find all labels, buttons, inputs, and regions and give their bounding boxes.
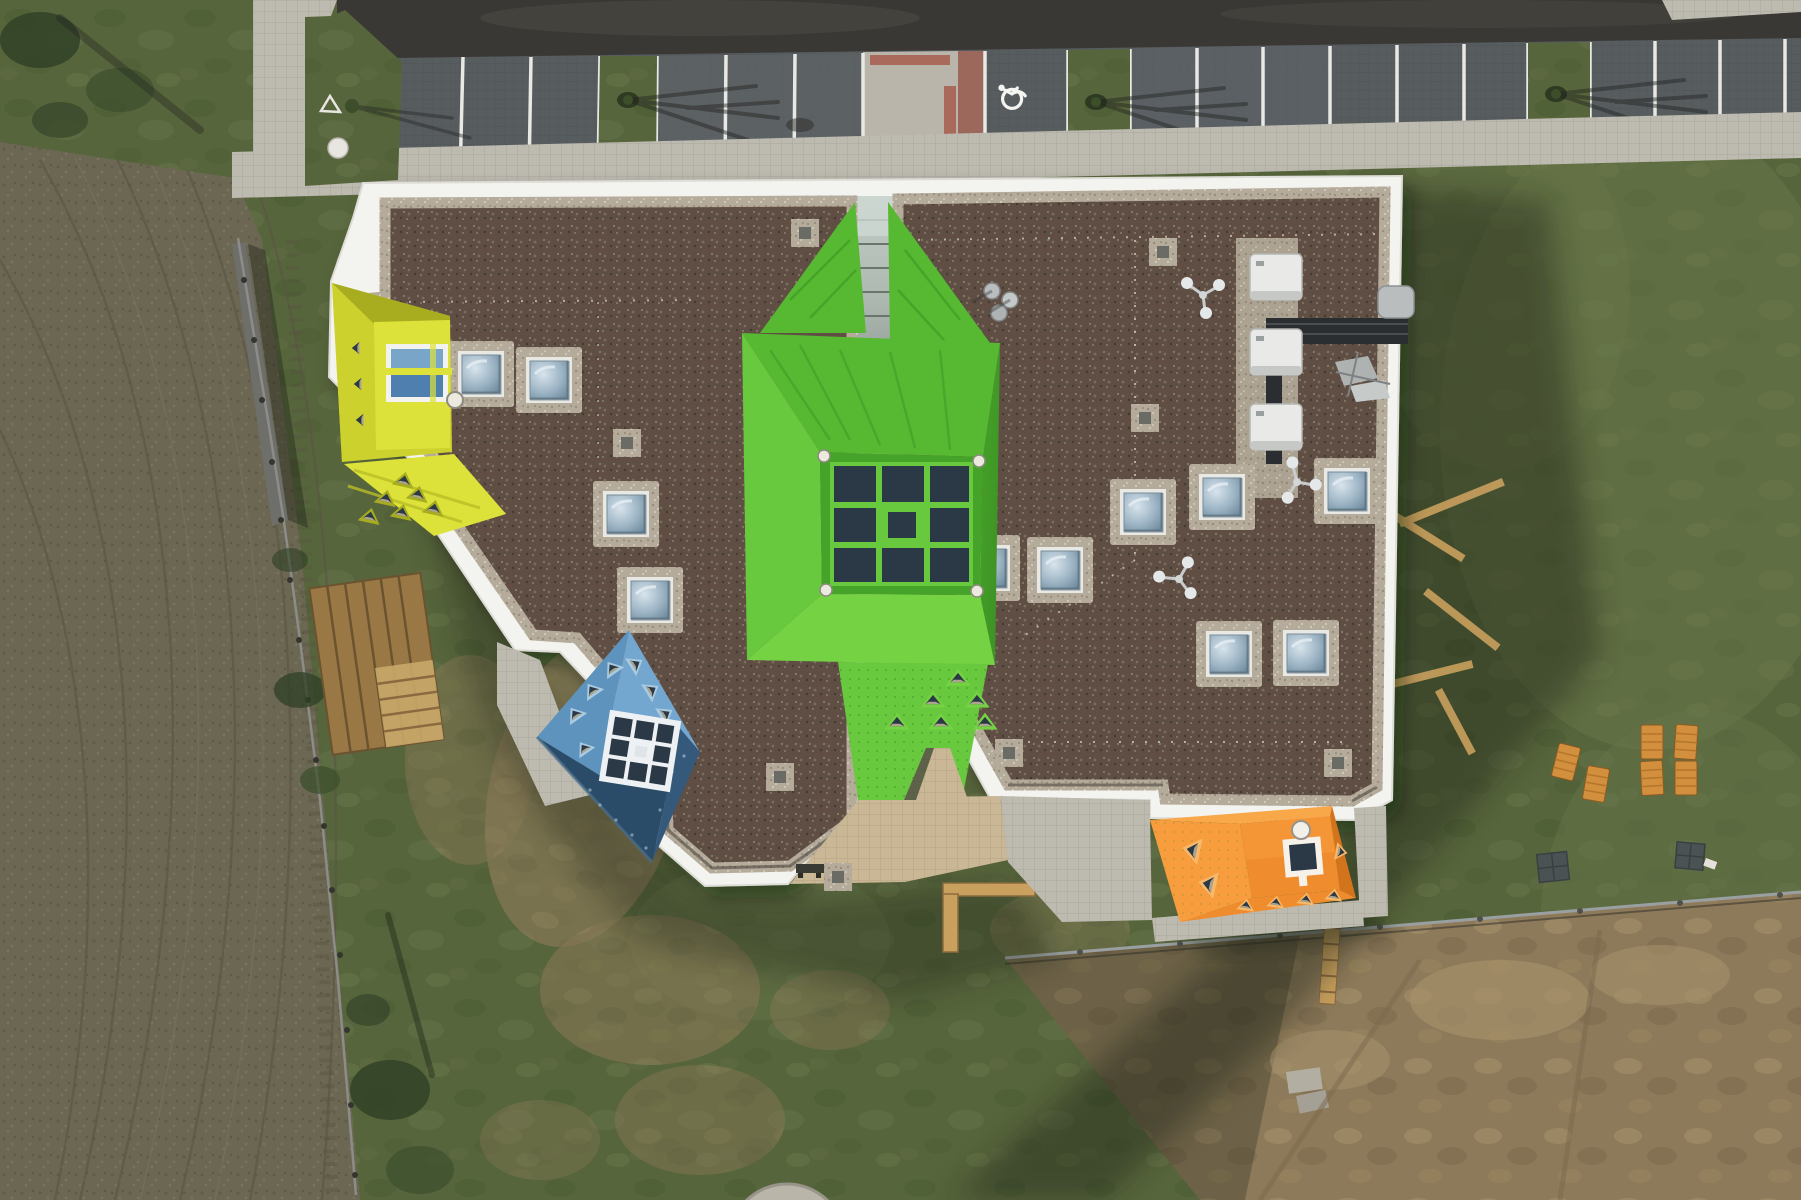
hvac-unit-icon <box>1250 404 1302 450</box>
skylight-icon <box>1110 479 1176 545</box>
roof-tank-icon <box>1378 286 1414 318</box>
roof-vent-icon <box>766 763 794 791</box>
skylight-icon <box>1027 537 1093 603</box>
hvac-unit-icon <box>1250 254 1302 300</box>
blue-skylight-grid <box>599 710 681 792</box>
skylight-icon <box>1314 458 1380 524</box>
skylight-icon <box>1273 620 1339 686</box>
roof-vent-icon <box>995 739 1023 767</box>
skylight-icon <box>617 567 683 633</box>
aerial-photo-canvas <box>0 0 1801 1200</box>
roof-vent-icon <box>1131 404 1159 432</box>
roof-vent-icon <box>1324 749 1352 777</box>
vent-cap-icon <box>447 392 463 408</box>
aerial-photo <box>0 0 1801 1200</box>
hvac-unit-icon <box>1250 329 1302 375</box>
paving-drain-icon <box>824 863 852 891</box>
roof-vent-icon <box>791 219 819 247</box>
yellow-roof-window <box>384 344 452 402</box>
skylight-icon <box>593 481 659 547</box>
vent-cap-icon <box>1292 821 1310 839</box>
manhole-icon <box>328 138 348 158</box>
tiered-bench <box>309 573 443 755</box>
roof-vent-icon <box>1149 238 1177 266</box>
skylight-icon <box>516 347 582 413</box>
roof-vent-icon <box>613 429 641 457</box>
skylight-icon <box>1189 464 1255 530</box>
skylight-icon <box>1196 621 1262 687</box>
green-skylight-grid <box>818 450 985 597</box>
